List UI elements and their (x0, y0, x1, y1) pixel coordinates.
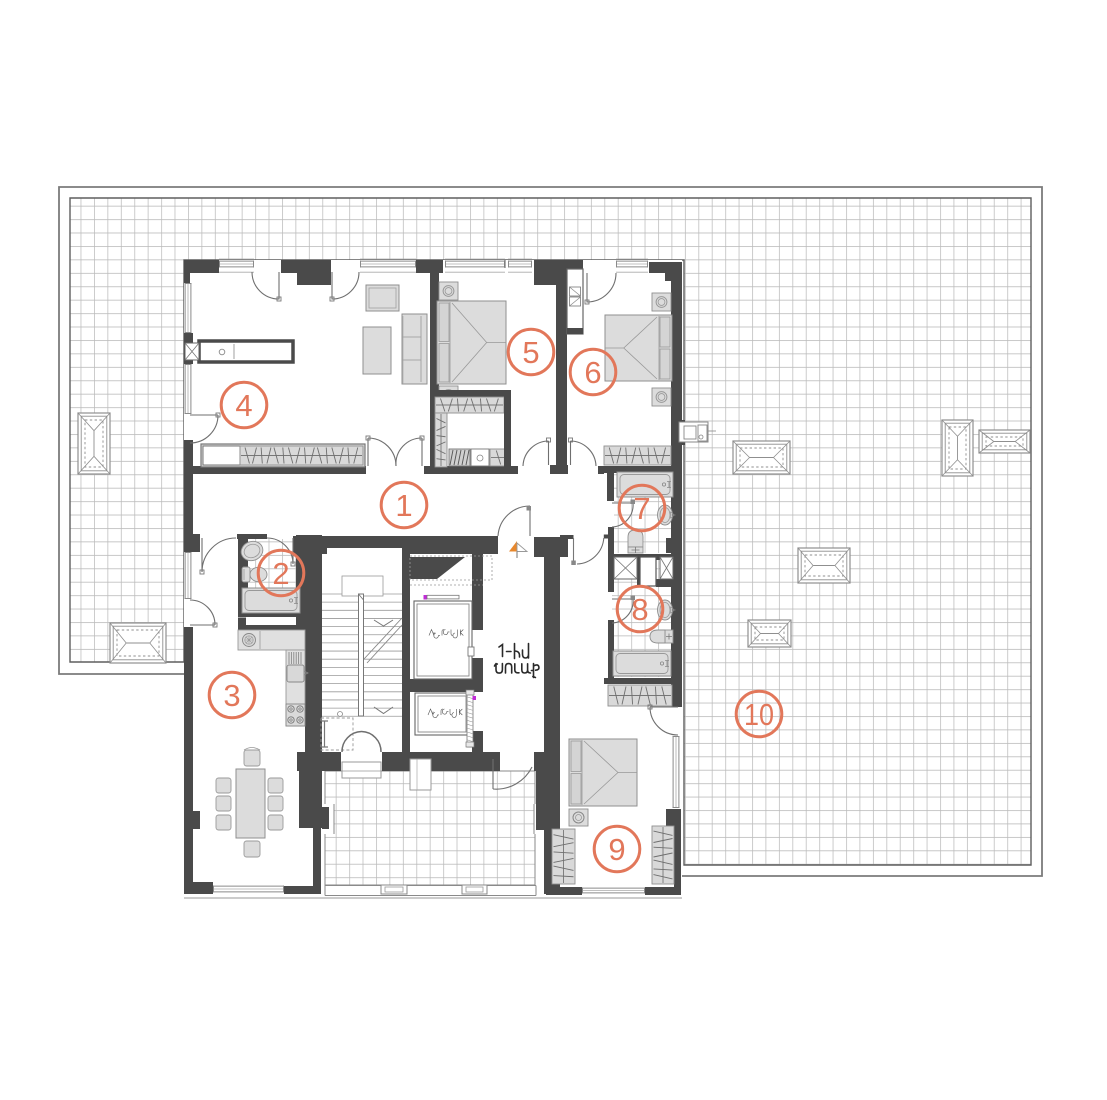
svg-text:1: 1 (395, 488, 412, 523)
svg-text:9: 9 (608, 832, 625, 867)
svg-text:7: 7 (633, 491, 650, 526)
svg-text:5: 5 (522, 335, 539, 370)
svg-text:6: 6 (584, 355, 601, 390)
svg-text:4: 4 (235, 388, 252, 423)
svg-text:10: 10 (744, 697, 774, 732)
svg-text:3: 3 (223, 678, 240, 713)
svg-text:2: 2 (272, 556, 289, 591)
svg-text:8: 8 (631, 592, 648, 627)
